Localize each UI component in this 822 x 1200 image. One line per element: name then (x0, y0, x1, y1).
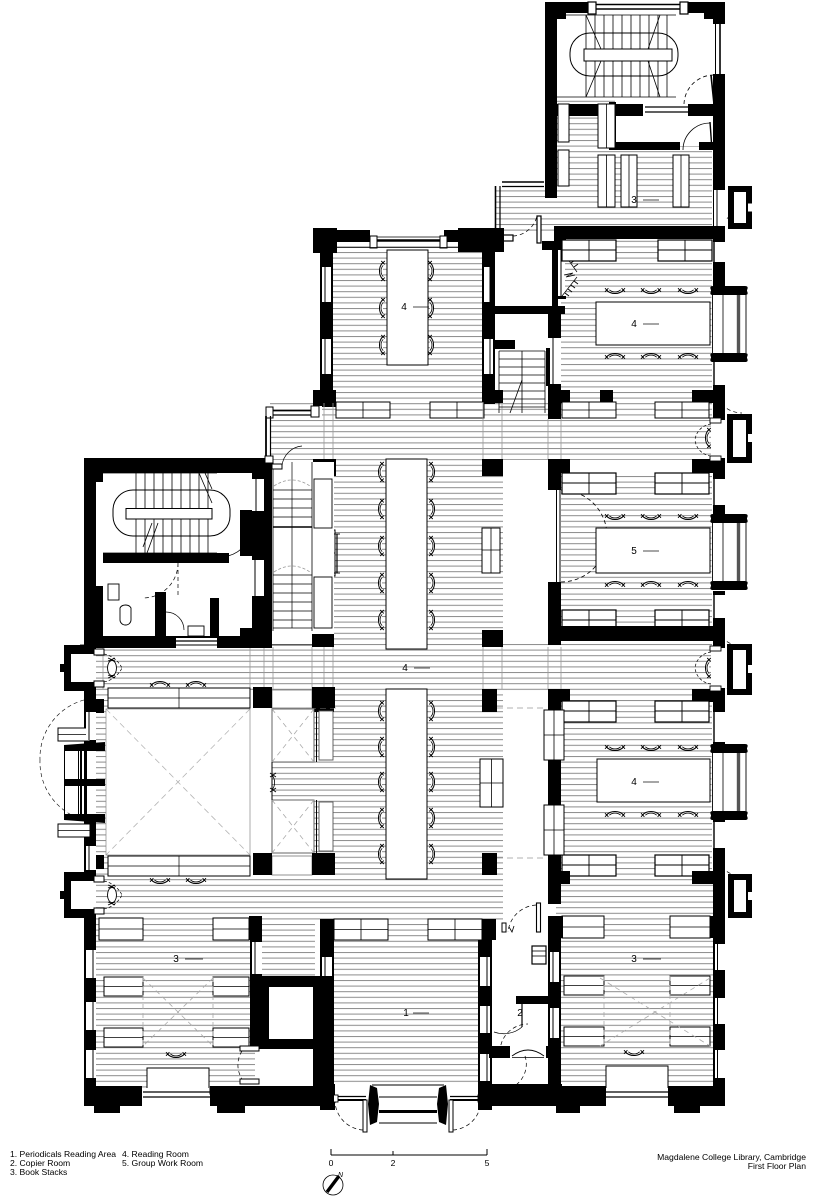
svg-text:5: 5 (485, 1158, 490, 1168)
svg-text:5: 5 (631, 546, 637, 557)
svg-text:5. Group Work Room: 5. Group Work Room (122, 1158, 203, 1168)
svg-text:First Floor Plan: First Floor Plan (748, 1161, 806, 1171)
svg-text:3: 3 (631, 954, 637, 965)
svg-text:4: 4 (631, 319, 637, 330)
svg-text:2: 2 (391, 1158, 396, 1168)
svg-text:1: 1 (403, 1008, 409, 1019)
svg-text:3: 3 (173, 954, 179, 965)
svg-text:3. Book Stacks: 3. Book Stacks (10, 1167, 67, 1177)
svg-text:4: 4 (402, 663, 408, 674)
svg-text:4: 4 (401, 302, 407, 313)
svg-text:0: 0 (329, 1158, 334, 1168)
svg-text:4: 4 (631, 777, 637, 788)
svg-text:3: 3 (631, 195, 637, 206)
